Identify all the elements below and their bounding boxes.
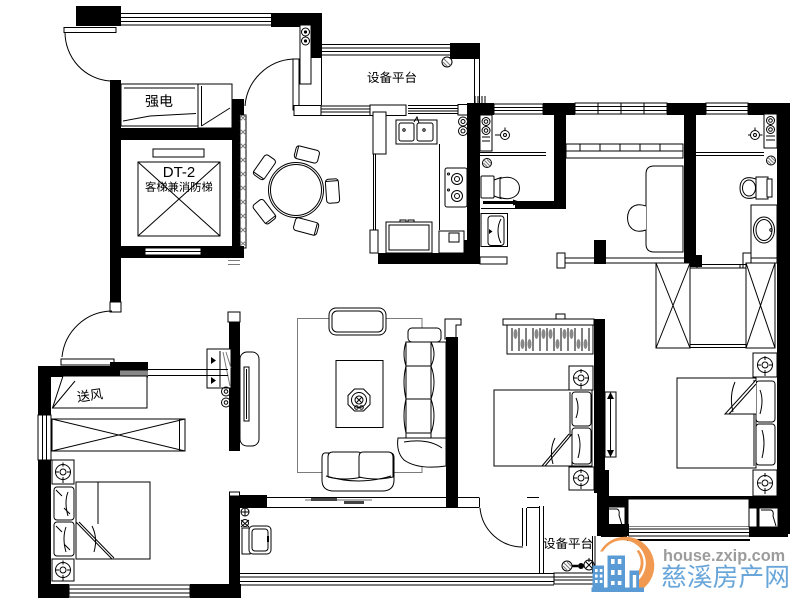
svg-text:DT-2: DT-2 [163, 164, 196, 181]
svg-text:house.zxip.com: house.zxip.com [663, 547, 785, 565]
